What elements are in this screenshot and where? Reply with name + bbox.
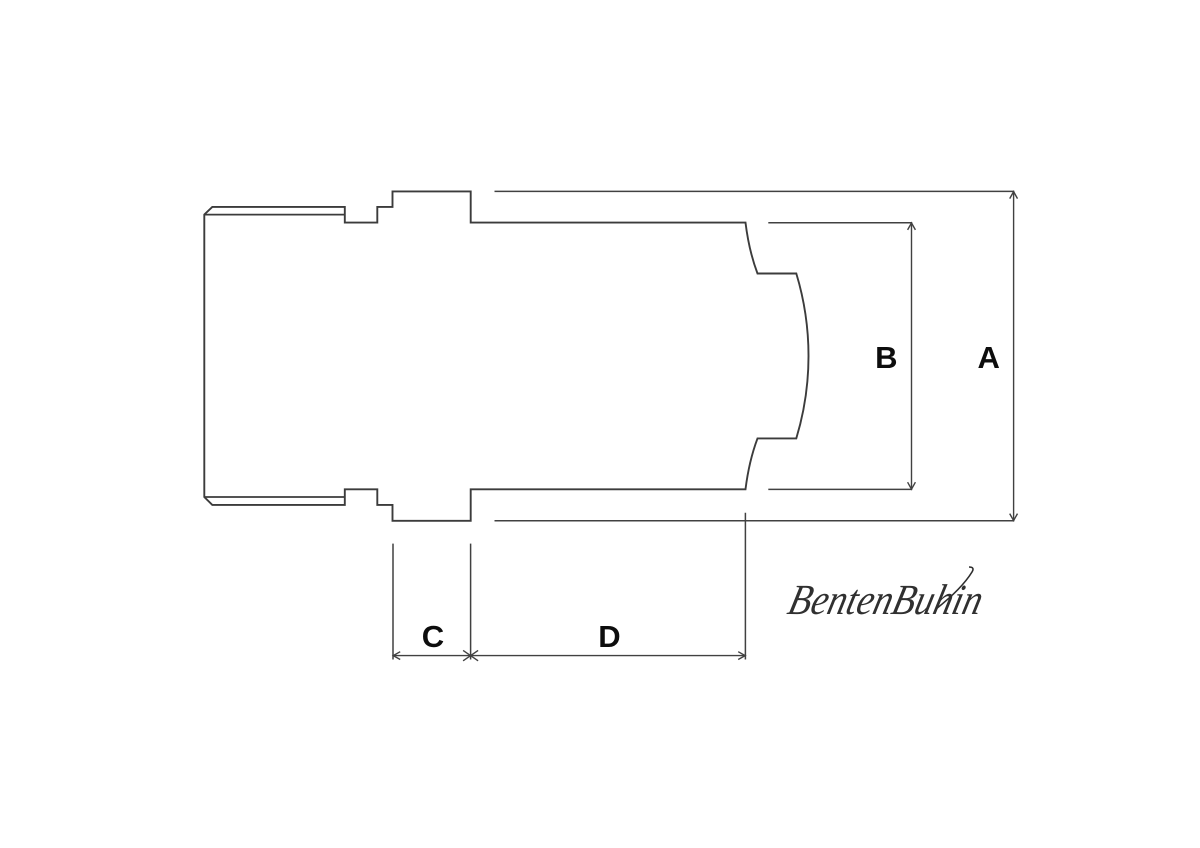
svg-text:D: D (598, 619, 620, 654)
svg-text:BentenBuhin: BentenBuhin (784, 577, 989, 624)
svg-text:B: B (875, 340, 897, 375)
svg-text:A: A (978, 340, 1000, 375)
svg-text:C: C (422, 619, 444, 654)
